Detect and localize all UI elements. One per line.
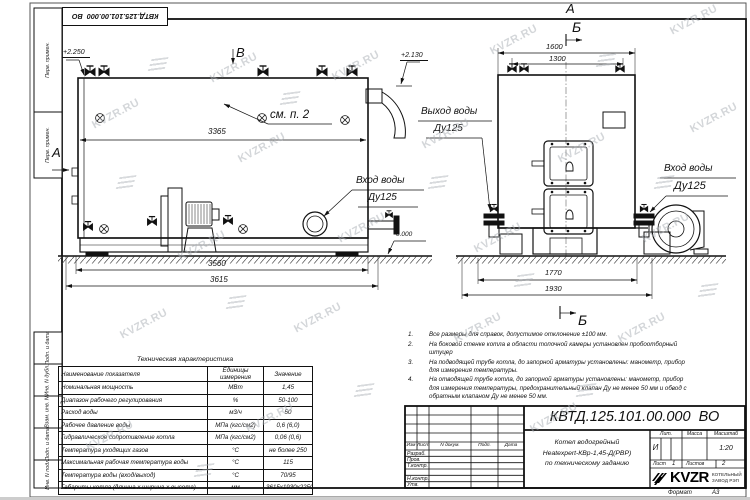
- col-data: Дата: [498, 444, 524, 449]
- note-number: 4.: [404, 376, 429, 401]
- side-leaders: [52, 49, 426, 254]
- document-name-line3: по техническому заданию: [526, 459, 648, 470]
- boiler-door: [532, 141, 593, 186]
- table-row: Диапазон рабочего регулирования%50-100: [59, 394, 313, 407]
- spec-cell: 1,45: [264, 382, 313, 395]
- fan-volute: [652, 205, 708, 254]
- spec-cell: 50: [264, 407, 313, 420]
- col-izm: Изм: [405, 444, 417, 449]
- valve-icon: [317, 66, 327, 76]
- drawing-sheet: КВТД.125.101.00.000 ВО Перв. примен. Пер…: [0, 0, 750, 500]
- spec-cell: °С: [208, 444, 264, 457]
- spec-cell: 70/95: [264, 469, 313, 482]
- note-number: 3.: [404, 359, 429, 375]
- burner-assembly: [161, 188, 219, 252]
- company-logo: KVZR КОТЕЛЬНЫЙ ЗАВОД РЭП: [652, 470, 744, 485]
- dimension-3560: 3560: [208, 260, 226, 268]
- document-name: Котел водогрейный Heatexpert-КВр-1,45-Д(…: [526, 438, 648, 470]
- table-row: Номинальная мощностьМВт1,45: [59, 382, 313, 395]
- document-name-line2: Heatexpert-КВр-1,45-Д(РВР): [526, 449, 648, 460]
- inlet-du125-label-rear: Ду125: [674, 181, 706, 192]
- col-list: Лист: [417, 444, 429, 449]
- elevation-mark-2130: +2.130: [400, 52, 428, 61]
- ground-hatch: [456, 257, 726, 264]
- lit-value: И: [650, 444, 661, 452]
- table-row: Температура уходящих газов°Сне более 250: [59, 444, 313, 457]
- spec-cell: не более 250: [264, 444, 313, 457]
- spec-cell: Диапазон рабочего регулирования: [59, 394, 208, 407]
- spec-cell: Максимальная рабочая температура воды: [59, 457, 208, 470]
- side-view: [52, 49, 432, 290]
- spec-cell: 115: [264, 457, 313, 470]
- table-row: Наименование показателя Единицы измерени…: [59, 367, 313, 382]
- elevation-mark-zero: 0.000: [396, 232, 412, 239]
- lifting-lug-icon: [239, 225, 248, 234]
- company-name: КОТЕЛЬНЫЙ ЗАВОД РЭП: [712, 472, 742, 483]
- scale-value: 1:20: [707, 445, 745, 452]
- table-row: Габариты котла (длинна х ширина х высота…: [59, 482, 313, 495]
- valve-icon: [520, 64, 529, 72]
- drawing-designation: КВТД.125.101.00.000 ВО: [524, 410, 745, 425]
- dimension-1600: 1600: [546, 43, 563, 51]
- rotated-designation-stamp: КВТД.125.101.00.000 ВО: [62, 7, 168, 26]
- spec-cell: 3615х1930х2250: [264, 482, 313, 495]
- notes-list: 1.Все размеры для справок, допустимое от…: [404, 331, 694, 403]
- elevation-mark-2250: +2.250: [62, 49, 90, 58]
- dimension-3615: 3615: [210, 276, 228, 284]
- format-label: Формат: [668, 490, 692, 496]
- spec-cell: Номинальная мощность: [59, 382, 208, 395]
- kvzr-logo-icon: [652, 471, 667, 485]
- margin-label: Инв. N дубл.: [45, 364, 51, 395]
- format-value: А3: [712, 490, 719, 496]
- table-row: Гидравлическое сопротивление котлаМПа (к…: [59, 432, 313, 445]
- outlet-du125-label: Ду125: [434, 124, 463, 134]
- spec-cell: Расход воды: [59, 407, 208, 420]
- spec-cell: Температура воды (вход/выход): [59, 469, 208, 482]
- spec-header: Наименование показателя: [59, 367, 208, 382]
- valve-icon: [99, 66, 109, 76]
- spec-table-title: Техническая характеристика: [58, 356, 312, 363]
- spec-table: Наименование показателя Единицы измерени…: [58, 366, 313, 495]
- callout-see-note-2: см. п. 2: [270, 110, 309, 122]
- note-text: Все размеры для справок, допустимое откл…: [429, 331, 607, 339]
- row-utv: Утв.: [407, 483, 419, 488]
- dimension-1770: 1770: [545, 269, 562, 277]
- valve-icon: [490, 205, 498, 212]
- table-row: Температура воды (вход/выход)°С70/95: [59, 469, 313, 482]
- spec-cell: м3/ч: [208, 407, 264, 420]
- note-number: 1.: [404, 331, 429, 339]
- margin-label: Подп. и дата: [45, 331, 51, 365]
- logo-text: KVZR: [670, 470, 709, 485]
- mass-label: Масса: [682, 432, 707, 437]
- spec-cell: °С: [208, 457, 264, 470]
- view-label-b-bottom: Б: [578, 313, 587, 327]
- note-text: На боковой стенке котла в области топочн…: [429, 341, 694, 357]
- spec-cell: Габариты котла (длинна х ширина х высота…: [59, 482, 208, 495]
- valve-icon: [640, 205, 648, 212]
- water-inlet-port: [303, 212, 327, 236]
- outlet-water-label: Выход воды: [421, 107, 477, 117]
- view-label-v: В: [236, 46, 245, 59]
- spec-cell: °С: [208, 469, 264, 482]
- spec-cell: 0,6 (6,0): [264, 419, 313, 432]
- margin-label: Перв. примен.: [45, 127, 51, 163]
- note-item: 3.На подводящей трубе котла, до запорной…: [404, 359, 694, 375]
- col-podp: Подп.: [471, 444, 498, 449]
- lifting-lug-icon: [100, 225, 109, 234]
- note-item: 2.На боковой стенке котла в области топо…: [404, 341, 694, 357]
- inlet-du125-label-side: Ду125: [368, 193, 397, 203]
- scale-label: Масштаб: [707, 432, 745, 437]
- rear-leaders: [418, 34, 736, 319]
- row-tkontr: Т.контр.: [407, 464, 428, 469]
- dimension-3365: 3365: [208, 128, 226, 136]
- lifting-lug-icon: [341, 116, 350, 125]
- spec-cell: Гидравлическое сопротивление котла: [59, 432, 208, 445]
- chimney-elbow: [366, 86, 412, 138]
- lit-label: Лит.: [650, 432, 682, 437]
- company-name-line2: ЗАВОД РЭП: [712, 478, 742, 484]
- valve-icon: [224, 216, 233, 225]
- spec-cell: %: [208, 394, 264, 407]
- note-item: 4.На отводящей трубе котла, до запорной …: [404, 376, 694, 401]
- spec-header: Значение: [264, 367, 313, 382]
- dimension-1300: 1300: [549, 55, 566, 63]
- lifting-lug-icon: [96, 114, 105, 123]
- sheet-label: Лист: [653, 462, 666, 467]
- valve-icon: [258, 66, 268, 76]
- note-number: 2.: [404, 341, 429, 357]
- valve-icon: [84, 222, 93, 231]
- table-row: Максимальная рабочая температура воды°С1…: [59, 457, 313, 470]
- margin-label: Подп. и дата: [45, 427, 51, 461]
- spec-cell: МПа (кгс/см2): [208, 419, 264, 432]
- margin-label: Взам. инв. N: [45, 396, 51, 427]
- ground-hatch: [58, 257, 432, 264]
- valve-icon: [347, 66, 357, 76]
- stamp-text: КВТД.125.101.00.000 ВО: [72, 12, 159, 21]
- spec-cell: мм: [208, 482, 264, 495]
- spec-cell: 0,06 (0,6): [264, 432, 313, 445]
- spec-cell: МПа (кгс/см2): [208, 432, 264, 445]
- spec-cell: Температура уходящих газов: [59, 444, 208, 457]
- note-text: На отводящей трубе котла, до запорной ар…: [429, 376, 694, 401]
- margin-field-perv-primen: Перв. примен.: [34, 8, 62, 112]
- view-label-a-side: А: [52, 146, 61, 159]
- valve-icon: [148, 217, 157, 226]
- col-doc: N докум.: [429, 444, 471, 449]
- sheets-value: 2: [722, 461, 725, 467]
- spec-cell: МВт: [208, 382, 264, 395]
- table-row: Рабочее давление водыМПа (кгс/см2)0,6 (6…: [59, 419, 313, 432]
- table-row: Расход водым3/ч50: [59, 407, 313, 420]
- view-label-b-top: Б: [572, 20, 581, 34]
- row-razrab: Разраб.: [407, 452, 426, 457]
- sheets-label: Листов: [686, 462, 704, 467]
- valve-icon: [85, 66, 95, 76]
- note-text: На подводящей трубе котла, до запорной а…: [429, 359, 694, 375]
- inlet-water-label-rear: Вход воды: [664, 164, 713, 174]
- view-label-a-rear: А: [566, 2, 575, 15]
- margin-label: Инв. N подл.: [45, 458, 51, 490]
- spec-cell: 50-100: [264, 394, 313, 407]
- sheet-value: 1: [672, 461, 675, 467]
- dimension-1930: 1930: [545, 285, 562, 293]
- inlet-water-label-side: Вход воды: [356, 176, 405, 186]
- margin-label: Перв. примен.: [45, 42, 51, 78]
- note-item: 1.Все размеры для справок, допустимое от…: [404, 331, 694, 339]
- spec-cell: Рабочее давление воды: [59, 419, 208, 432]
- spec-header: Единицы измерения: [208, 367, 264, 382]
- company-name-line1: КОТЕЛЬНЫЙ: [712, 472, 742, 478]
- valve-icon: [386, 211, 393, 218]
- document-name-line1: Котел водогрейный: [526, 438, 648, 449]
- rear-view: [418, 34, 736, 319]
